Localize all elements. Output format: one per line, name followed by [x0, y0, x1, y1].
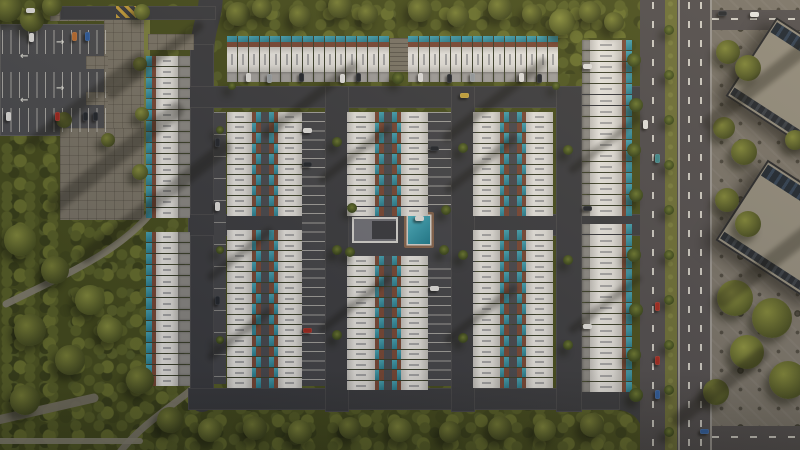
- roof-cell: [156, 89, 178, 99]
- roof-cell: [590, 73, 622, 83]
- townhouse-row-east-lower: [582, 224, 632, 392]
- tree-canopy: [55, 345, 85, 375]
- roof-cell: [227, 196, 252, 206]
- roof-cell: [408, 47, 418, 72]
- roof-cell: [473, 186, 500, 196]
- roof-cell: [227, 133, 252, 143]
- gap-cell: [261, 112, 269, 122]
- drive-cell: [582, 235, 590, 245]
- townhouse-unit: [582, 50, 632, 61]
- roof-cell: [590, 117, 622, 127]
- townhouse-unit: [347, 185, 428, 196]
- drive-cell: [582, 269, 590, 279]
- boulevard-median: [665, 0, 677, 450]
- townhouse-unit: [313, 36, 324, 82]
- drive-cell: [582, 258, 590, 268]
- townhouse-unit: [227, 282, 302, 293]
- tree-canopy: [488, 416, 512, 440]
- roof-cell: [156, 298, 178, 308]
- garage-cell: [494, 72, 504, 82]
- roof-cell: [278, 175, 303, 185]
- gap-cell: [509, 357, 517, 367]
- townhouse-unit: [146, 297, 190, 308]
- townhouse-unit: [473, 230, 553, 240]
- drive-cell: [178, 332, 190, 342]
- drive-cell: [582, 95, 590, 105]
- roof-cell: [473, 325, 500, 335]
- drive-cell: [582, 348, 590, 358]
- pavement-arrow-marking: ←: [20, 52, 28, 62]
- roof-cell: [401, 277, 429, 286]
- tree-canopy: [604, 12, 624, 32]
- roof-cell: [473, 272, 500, 282]
- tree-canopy: [579, 1, 601, 23]
- roof-cell: [526, 262, 553, 272]
- gap-cell: [384, 256, 392, 265]
- roof-cell: [526, 347, 553, 357]
- car: [340, 74, 345, 83]
- roof-cell: [347, 165, 375, 175]
- drive-cell: [582, 247, 590, 257]
- townhouse-unit: [547, 36, 558, 82]
- townhouse-unit: [347, 317, 428, 327]
- roof-cell: [278, 272, 303, 282]
- roof-cell: [590, 40, 622, 50]
- townhouse-unit: [408, 36, 418, 82]
- roof-cell: [278, 165, 303, 175]
- townhouse-unit: [504, 36, 515, 82]
- townhouse-unit: [582, 347, 632, 358]
- gap-cell: [509, 154, 517, 164]
- roof-cell: [278, 230, 303, 240]
- garage-cell: [483, 72, 493, 82]
- roof-cell: [227, 357, 252, 367]
- drive-cell: [582, 140, 590, 150]
- drive-cell: [582, 117, 590, 127]
- roof-cell: [347, 266, 375, 275]
- townhouse-unit: [227, 271, 302, 282]
- roof-cell: [347, 175, 375, 185]
- tree-canopy: [731, 139, 757, 165]
- roof-cell: [526, 378, 553, 388]
- roof-cell: [590, 162, 622, 172]
- car: [418, 73, 423, 82]
- townhouse-unit: [146, 142, 190, 153]
- roof-cell: [401, 266, 429, 275]
- gap-cell: [509, 336, 517, 346]
- gap-cell: [384, 207, 392, 217]
- yellow-hatch-marking: [116, 6, 136, 18]
- lane-marking: [712, 436, 798, 438]
- townhouse-unit: [227, 36, 237, 82]
- townhouse-unit: [473, 185, 553, 196]
- roof-cell: [227, 294, 252, 304]
- townhouse-unit: [473, 367, 553, 378]
- roof-cell: [227, 186, 252, 196]
- townhouse-unit: [582, 161, 632, 172]
- gap-cell: [509, 175, 517, 185]
- drive-cell: [178, 310, 190, 320]
- roof-cell: [440, 47, 450, 72]
- townhouse-unit: [146, 242, 190, 253]
- roof-cell: [347, 256, 375, 265]
- roof-cell: [156, 365, 178, 375]
- tree-canopy: [785, 130, 800, 150]
- palm-tree: [664, 295, 674, 305]
- roof-cell: [278, 207, 303, 217]
- car: [26, 8, 35, 13]
- roof-cell: [156, 265, 178, 275]
- townhouse-unit: [347, 112, 428, 122]
- drive-cell: [178, 56, 190, 66]
- gap-cell: [384, 165, 392, 175]
- townhouse-unit: [146, 320, 190, 331]
- drive-cell: [178, 154, 190, 164]
- roof-cell: [526, 112, 553, 122]
- roof-cell: [347, 123, 375, 133]
- tree-canopy: [126, 366, 154, 394]
- car: [655, 390, 660, 399]
- roof-cell: [526, 207, 553, 217]
- lane-marking: [688, 2, 690, 448]
- car: [267, 74, 272, 83]
- townhouse-unit: [582, 40, 632, 50]
- drive-cell: [582, 292, 590, 302]
- roof-cell: [227, 154, 252, 164]
- roof-cell: [278, 304, 303, 314]
- roof-cell: [526, 304, 553, 314]
- roof-cell: [473, 368, 500, 378]
- roof-cell: [526, 154, 553, 164]
- drive-cell: [178, 243, 190, 253]
- townhouse-unit: [227, 185, 302, 196]
- gap-cell: [261, 251, 269, 261]
- car: [215, 296, 220, 305]
- roof-cell: [156, 310, 178, 320]
- gap-cell: [261, 272, 269, 282]
- palm-tree: [629, 388, 643, 402]
- roof-cell: [156, 376, 178, 386]
- car: [93, 112, 98, 121]
- car: [83, 112, 88, 121]
- gap-cell: [384, 154, 392, 164]
- roof-cell: [238, 47, 248, 72]
- drive-cell: [178, 376, 190, 386]
- townhouse-unit: [582, 234, 632, 245]
- teal-cell: [626, 206, 632, 216]
- car: [415, 216, 424, 221]
- gap-cell: [509, 230, 517, 240]
- stepped-walkway: [390, 38, 408, 72]
- car: [72, 32, 77, 41]
- palm-tree: [629, 98, 643, 112]
- palm-tree: [664, 427, 674, 437]
- townhouse-unit: [473, 206, 553, 217]
- teal-cell: [626, 370, 632, 380]
- roof-cell: [292, 47, 302, 72]
- palm-tree: [627, 143, 641, 157]
- palm-tree: [627, 53, 641, 67]
- townhouse-unit: [146, 353, 190, 364]
- roof-cell: [473, 336, 500, 346]
- carport-parking-strip: [302, 112, 325, 386]
- palm-tree: [563, 340, 573, 350]
- teal-cell: [626, 73, 632, 83]
- pavement-arrow-marking: ←: [20, 96, 28, 106]
- roof-cell: [590, 325, 622, 335]
- townhouse-unit: [227, 261, 302, 272]
- townhouse-unit: [347, 338, 428, 348]
- roof-cell: [347, 339, 375, 348]
- lane-marking: [712, 18, 800, 20]
- townhouse-unit: [227, 153, 302, 164]
- drive-cell: [582, 73, 590, 83]
- roof-cell: [473, 207, 500, 217]
- gap-cell: [261, 283, 269, 293]
- townhouse-unit: [473, 174, 553, 185]
- car: [303, 328, 312, 333]
- roof-cell: [156, 154, 178, 164]
- roof-cell: [401, 196, 429, 206]
- roof-cell: [494, 47, 504, 72]
- townhouse-unit: [429, 36, 440, 82]
- gap-cell: [384, 350, 392, 359]
- lane-marking: [700, 2, 702, 448]
- roof-cell: [379, 47, 389, 72]
- car: [215, 202, 220, 211]
- roof-cell: [473, 175, 500, 185]
- car: [299, 73, 304, 82]
- aerial-site-plan-render: →←→←: [0, 0, 800, 450]
- gap-cell: [509, 315, 517, 325]
- palm-tree: [664, 160, 674, 170]
- roof-cell: [278, 357, 303, 367]
- roof-cell: [278, 196, 303, 206]
- roof-cell: [278, 262, 303, 272]
- garage-cell: [368, 72, 378, 82]
- garage-cell: [281, 72, 291, 82]
- townhouse-unit: [227, 195, 302, 206]
- drive-cell: [178, 143, 190, 153]
- townhouse-unit: [146, 286, 190, 297]
- roof-cell: [156, 287, 178, 297]
- drive-cell: [178, 365, 190, 375]
- car: [215, 138, 220, 147]
- drive-cell: [178, 354, 190, 364]
- car: [537, 74, 542, 83]
- gap-cell: [509, 262, 517, 272]
- townhouse-unit: [473, 377, 553, 388]
- roof-cell: [156, 276, 178, 286]
- roof-cell: [260, 47, 270, 72]
- roof-cell: [473, 251, 500, 261]
- roof-cell: [401, 207, 429, 217]
- roof-cell: [526, 175, 553, 185]
- gap-cell: [261, 165, 269, 175]
- gap-cell: [509, 165, 517, 175]
- townhouse-unit: [146, 77, 190, 88]
- roof-cell: [227, 165, 252, 175]
- roof-cell: [505, 47, 515, 72]
- roof-cell: [278, 144, 303, 154]
- car: [583, 64, 592, 69]
- gap-cell: [509, 112, 517, 122]
- gap-cell: [261, 325, 269, 335]
- car: [655, 356, 660, 365]
- roof-cell: [473, 241, 500, 251]
- garage-cell: [548, 72, 558, 82]
- roof-cell: [401, 144, 429, 154]
- roof-cell: [314, 47, 324, 72]
- roof-cell: [451, 47, 461, 72]
- gap-cell: [261, 196, 269, 206]
- roof-cell: [227, 368, 252, 378]
- drive-cell: [178, 132, 190, 142]
- tree-canopy: [243, 416, 267, 440]
- tree-canopy: [134, 4, 150, 20]
- roof-cell: [590, 224, 622, 234]
- garage-cell: [314, 72, 324, 82]
- townhouse-unit: [347, 380, 428, 390]
- townhouse-unit: [582, 194, 632, 205]
- townhouse-unit: [146, 275, 190, 286]
- gap-cell: [261, 175, 269, 185]
- roof-cell: [473, 283, 500, 293]
- townhouse-unit: [280, 36, 291, 82]
- car: [655, 154, 660, 163]
- roof-cell: [526, 123, 553, 133]
- car: [750, 12, 759, 17]
- roof-cell: [270, 47, 280, 72]
- roof-cell: [227, 47, 237, 72]
- palm-tree: [392, 72, 404, 84]
- tree-canopy: [522, 4, 542, 24]
- gap-cell: [509, 368, 517, 378]
- townhouse-unit: [227, 346, 302, 357]
- tree-canopy: [580, 413, 604, 437]
- townhouse-unit: [227, 356, 302, 367]
- townhouse-unit: [347, 328, 428, 338]
- palm-tree: [332, 137, 342, 147]
- townhouse-row-north-a: [227, 36, 389, 82]
- townhouse-unit: [227, 367, 302, 378]
- roof-cell: [278, 294, 303, 304]
- townhouse-unit: [146, 253, 190, 264]
- roof-cell: [278, 347, 303, 357]
- roof-cell: [590, 195, 622, 205]
- tree-canopy: [715, 188, 739, 212]
- roof-cell: [401, 165, 429, 175]
- townhouse-unit: [146, 153, 190, 164]
- palm-tree: [347, 203, 357, 213]
- parking-stalls: [2, 30, 106, 54]
- townhouse-unit: [227, 164, 302, 175]
- roof-cell: [347, 318, 375, 327]
- roof-cell: [347, 360, 375, 369]
- drive-cell: [582, 382, 590, 392]
- roof-cell: [278, 325, 303, 335]
- roof-cell: [278, 336, 303, 346]
- gap-cell: [384, 339, 392, 348]
- car: [430, 286, 439, 291]
- teal-cell: [626, 40, 632, 50]
- drive-cell: [178, 208, 190, 218]
- roof-cell: [227, 175, 252, 185]
- gap-cell: [509, 196, 517, 206]
- edge-line: [678, 0, 680, 450]
- drive-cell: [178, 287, 190, 297]
- gap-cell: [384, 287, 392, 296]
- roof-cell: [473, 47, 483, 72]
- roof-cell: [278, 133, 303, 143]
- gap-cell: [261, 262, 269, 272]
- car: [303, 162, 312, 167]
- drive-cell: [582, 195, 590, 205]
- roof-cell: [401, 339, 429, 348]
- palm-tree: [664, 70, 674, 80]
- gap-cell: [509, 347, 517, 357]
- car: [246, 73, 251, 82]
- roof-cell: [278, 241, 303, 251]
- teal-cell: [626, 84, 632, 94]
- roof-cell: [526, 251, 553, 261]
- drive-cell: [582, 337, 590, 347]
- roof-cell: [473, 230, 500, 240]
- drive-cell: [178, 298, 190, 308]
- roof-cell: [156, 67, 178, 77]
- roof-cell: [590, 51, 622, 61]
- gap-cell: [509, 241, 517, 251]
- clubhouse-skylight: [372, 221, 396, 239]
- garage-cell: [379, 72, 389, 82]
- roof-cell: [473, 196, 500, 206]
- roof-cell: [401, 318, 429, 327]
- roof-cell: [347, 350, 375, 359]
- teal-cell: [626, 224, 632, 234]
- townhouse-unit: [227, 293, 302, 304]
- car: [85, 32, 90, 41]
- drive-cell: [582, 84, 590, 94]
- townhouse-unit: [146, 264, 190, 275]
- palm-tree: [629, 188, 643, 202]
- townhouse-row-north-b: [408, 36, 558, 82]
- drive-cell: [582, 129, 590, 139]
- gap-cell: [384, 381, 392, 390]
- palm-tree: [629, 303, 643, 317]
- townhouse-unit: [582, 369, 632, 380]
- roof-cell: [526, 336, 553, 346]
- tree-canopy: [41, 256, 69, 284]
- roof-cell: [227, 112, 252, 122]
- roof-cell: [526, 368, 553, 378]
- gap-cell: [384, 144, 392, 154]
- roof-cell: [590, 106, 622, 116]
- palm-tree: [345, 247, 355, 257]
- palm-tree: [627, 348, 641, 362]
- townhouse-unit: [473, 122, 553, 133]
- car: [29, 33, 34, 42]
- gap-cell: [261, 336, 269, 346]
- gap-cell: [384, 112, 392, 122]
- gap-cell: [384, 329, 392, 338]
- roof-cell: [156, 243, 178, 253]
- gap-cell: [509, 325, 517, 335]
- tree-canopy: [752, 298, 792, 338]
- roof-cell: [590, 348, 622, 358]
- gap-cell: [509, 251, 517, 261]
- roof-cell: [156, 343, 178, 353]
- pavement-arrow-marking: →: [56, 84, 64, 94]
